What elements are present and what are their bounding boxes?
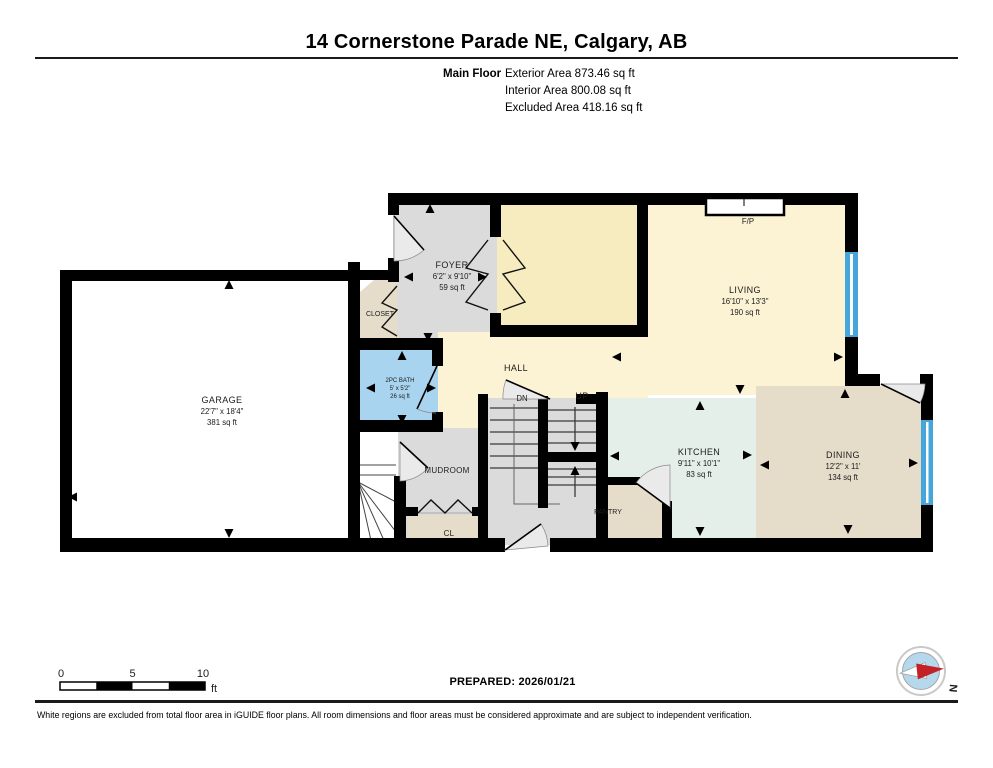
hall-name: HALL bbox=[504, 363, 528, 373]
living-area: 190 sq ft bbox=[730, 308, 761, 317]
room-label-dining: DINING 12'2" x 11' 134 sq ft bbox=[825, 450, 861, 482]
garage-area: 381 sq ft bbox=[207, 418, 238, 427]
floorplan-drawing: GARAGE 22'7" x 18'4" 381 sq ft FOYER 6'2… bbox=[0, 0, 993, 768]
window-living bbox=[845, 252, 858, 337]
disclaimer-text: White regions are excluded from total fl… bbox=[37, 710, 978, 720]
bath-dims: 5' x 5'2" bbox=[390, 386, 411, 392]
garage-name: GARAGE bbox=[202, 395, 243, 405]
bath-area: 26 sq ft bbox=[390, 394, 410, 400]
stairs-up-label: UP bbox=[575, 391, 588, 401]
living-name: LIVING bbox=[729, 285, 761, 295]
stairs-down-label: DN bbox=[516, 394, 527, 403]
cl-name: CL bbox=[444, 529, 455, 538]
kitchen-name: KITCHEN bbox=[678, 447, 720, 457]
dining-name: DINING bbox=[826, 450, 860, 460]
pantry-name: PANTRY bbox=[594, 509, 622, 516]
fireplace bbox=[706, 198, 784, 215]
fireplace-label: F/P bbox=[742, 217, 754, 226]
closet-name: CLOSET bbox=[366, 311, 395, 318]
foyer-area: 59 sq ft bbox=[439, 283, 465, 292]
kitchen-dims: 9'11" x 10'1" bbox=[678, 459, 720, 468]
flex-room-floor bbox=[497, 205, 643, 332]
bath-name: 2PC BATH bbox=[386, 378, 415, 384]
footer-divider bbox=[35, 700, 958, 703]
living-dims: 16'10" x 13'3" bbox=[721, 297, 768, 306]
room-fills bbox=[66, 199, 927, 546]
garage-steps-area bbox=[356, 432, 398, 546]
dining-area: 134 sq ft bbox=[828, 473, 859, 482]
mudroom-name: MUDROOM bbox=[424, 466, 469, 475]
kitchen-area: 83 sq ft bbox=[686, 470, 712, 479]
window-dining bbox=[921, 420, 933, 505]
garage-dims: 22'7" x 18'4" bbox=[201, 407, 244, 416]
dining-dims: 12'2" x 11' bbox=[825, 462, 861, 471]
foyer-name: FOYER bbox=[435, 260, 468, 270]
foyer-dims: 6'2" x 9'10" bbox=[433, 272, 472, 281]
prepared-date: PREPARED: 2026/01/21 bbox=[32, 676, 993, 688]
